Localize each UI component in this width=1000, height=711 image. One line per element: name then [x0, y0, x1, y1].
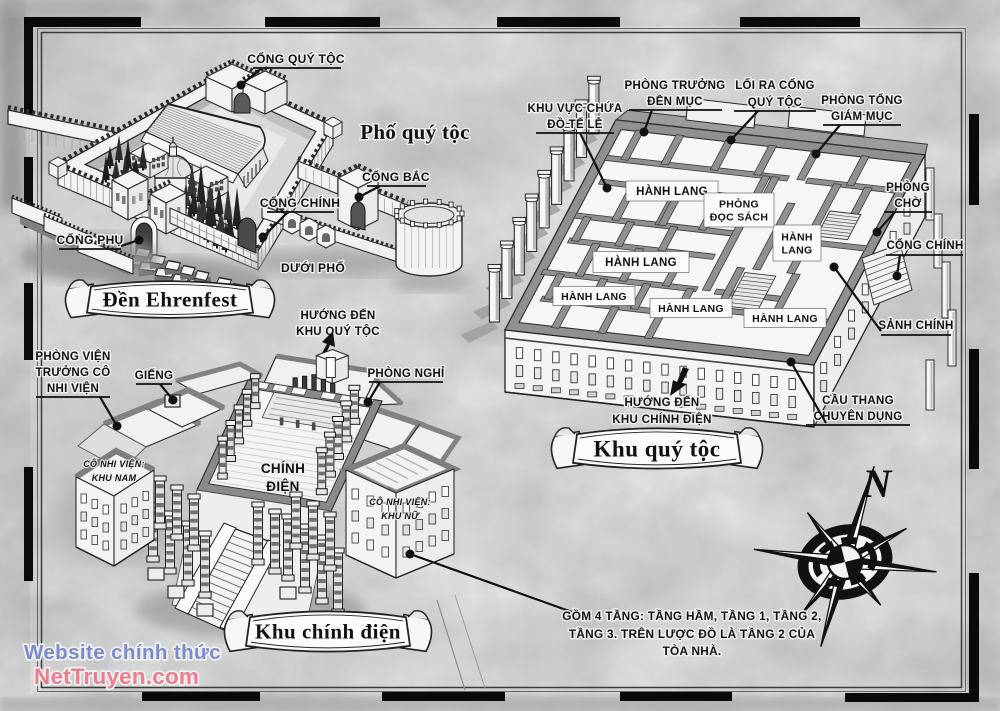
svg-text:KHU CHÍNH ĐIỆN: KHU CHÍNH ĐIỆN — [612, 413, 711, 426]
svg-text:GIÁM MỤC: GIÁM MỤC — [831, 110, 893, 123]
svg-text:QUÝ TỘC: QUÝ TỘC — [748, 96, 803, 109]
svg-text:HÀNH LANG: HÀNH LANG — [636, 185, 708, 198]
svg-text:TRƯỞNG CÔ: TRƯỞNG CÔ — [35, 366, 110, 379]
svg-text:PHÒNG VIỆN: PHÒNG VIỆN — [35, 350, 110, 363]
svg-text:CẦU THANG: CẦU THANG — [822, 394, 894, 407]
svg-text:LỐI RA CỔNG: LỐI RA CỔNG — [735, 78, 815, 92]
svg-text:KHU VỰC CHỨA: KHU VỰC CHỨA — [528, 102, 623, 115]
svg-text:KHU NAM: KHU NAM — [92, 473, 137, 483]
svg-text:CỔNG CHÍNH: CỔNG CHÍNH — [260, 195, 340, 210]
svg-text:HƯỚNG ĐẾN: HƯỚNG ĐẾN — [624, 396, 699, 409]
svg-text:HÀNH: HÀNH — [781, 230, 813, 243]
svg-text:NHI VIỆN: NHI VIỆN — [47, 382, 99, 395]
svg-text:ĐỀN MỤC: ĐỀN MỤC — [647, 95, 703, 108]
svg-text:HÀNH LANG: HÀNH LANG — [658, 302, 724, 315]
svg-text:PHÒNG NGHỈ: PHÒNG NGHỈ — [367, 367, 445, 380]
svg-text:CHỜ: CHỜ — [894, 197, 921, 210]
svg-text:ĐỌC SÁCH: ĐỌC SÁCH — [710, 210, 768, 223]
svg-text:KHU NỮ: KHU NỮ — [381, 511, 420, 521]
svg-text:PHÒNG: PHÒNG — [886, 181, 930, 194]
svg-text:Đền Ehrenfest: Đền Ehrenfest — [102, 288, 237, 312]
svg-text:N: N — [861, 461, 893, 506]
svg-text:TÒA NHÀ.: TÒA NHÀ. — [663, 644, 722, 658]
svg-text:DƯỚI PHỐ: DƯỚI PHỐ — [281, 260, 345, 275]
svg-text:SẢNH CHÍNH: SẢNH CHÍNH — [878, 319, 953, 332]
svg-text:Phố quý tộc: Phố quý tộc — [360, 120, 469, 144]
svg-text:HÀNH LANG: HÀNH LANG — [752, 312, 818, 325]
svg-text:PHÒNG: PHÒNG — [719, 197, 759, 210]
svg-text:ĐỒ TẾ LỄ: ĐỒ TẾ LỄ — [547, 118, 602, 131]
svg-text:GIẾNG: GIẾNG — [135, 369, 174, 382]
svg-text:PHÒNG TRƯỞNG: PHÒNG TRƯỞNG — [625, 79, 726, 92]
svg-text:HƯỚNG ĐẾN: HƯỚNG ĐẾN — [300, 309, 375, 322]
svg-text:LANG: LANG — [782, 244, 813, 256]
svg-text:CỔNG PHỤ: CỔNG PHỤ — [56, 232, 123, 247]
svg-text:CỔNG QUÝ TỘC: CỔNG QUÝ TỘC — [247, 51, 345, 66]
svg-text:PHÒNG TỔNG: PHÒNG TỔNG — [821, 94, 903, 107]
svg-text:Khu chính điện: Khu chính điện — [255, 620, 401, 644]
svg-text:Khu quý tộc: Khu quý tộc — [594, 436, 721, 461]
svg-text:Website chính thức: Website chính thức — [24, 641, 221, 664]
svg-text:CÔ NHI VIỆN:: CÔ NHI VIỆN: — [83, 458, 145, 469]
svg-text:HÀNH LANG: HÀNH LANG — [561, 290, 627, 303]
svg-text:TẦNG 3. TRÊN LƯỢC ĐỒ LÀ TẦNG 2: TẦNG 3. TRÊN LƯỢC ĐỒ LÀ TẦNG 2 CỦA — [569, 627, 816, 641]
svg-text:CHUYÊN DỤNG: CHUYÊN DỤNG — [814, 410, 903, 423]
svg-text:NetTruyen.com: NetTruyen.com — [34, 664, 199, 689]
svg-text:HÀNH LANG: HÀNH LANG — [605, 256, 677, 269]
svg-text:KHU QUÝ TỘC: KHU QUÝ TỘC — [296, 325, 380, 338]
svg-text:CHÍNH: CHÍNH — [261, 461, 305, 476]
svg-text:CỔNG CHÍNH: CỔNG CHÍNH — [886, 239, 963, 252]
svg-text:CÔ NHI VIỆN:: CÔ NHI VIỆN: — [369, 496, 431, 507]
svg-text:CỔNG BẮC: CỔNG BẮC — [362, 169, 430, 184]
svg-text:GỒM 4 TẦNG: TẦNG HẦM, TẦNG 1,: GỒM 4 TẦNG: TẦNG HẦM, TẦNG 1, TẦNG 2, — [562, 609, 822, 623]
